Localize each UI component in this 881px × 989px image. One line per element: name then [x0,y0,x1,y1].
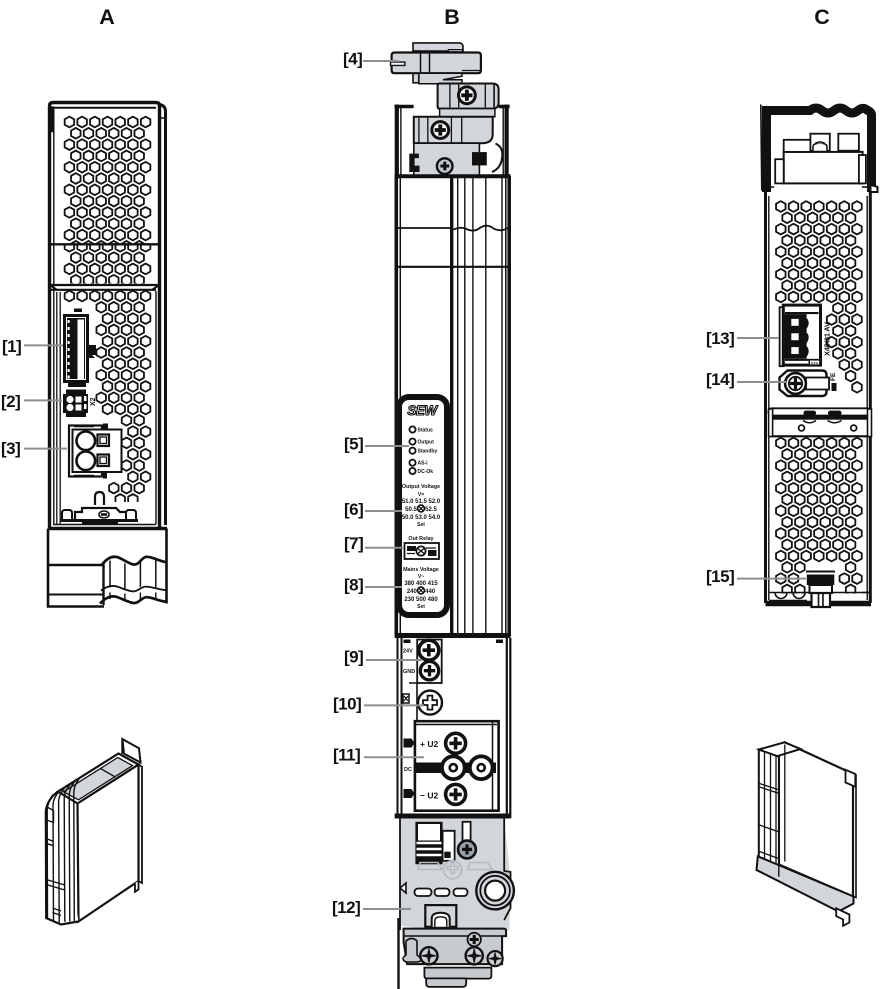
svg-text:[2]: [2] [1,392,20,411]
svg-text:Mains Voltage: Mains Voltage [403,567,439,573]
svg-text:+ U2: + U2 [420,739,438,749]
svg-text:FE: FE [830,372,837,381]
svg-text:B: B [444,5,460,29]
svg-text:C: C [814,5,830,29]
svg-text:[4]: [4] [343,49,362,68]
svg-text:[14]: [14] [706,370,734,389]
svg-text:SEW: SEW [407,403,438,418]
svg-text:[5]: [5] [344,434,363,453]
svg-text:[10]: [10] [333,694,361,713]
svg-text:[12]: [12] [332,898,360,917]
svg-text:Set: Set [417,604,425,610]
svg-text:Output: Output [418,440,435,446]
svg-text:[3]: [3] [1,439,20,458]
svg-text:V=: V= [418,492,424,498]
svg-text:24V: 24V [403,649,413,655]
svg-text:Out Relay: Out Relay [408,536,433,542]
svg-text:[1]: [1] [2,337,21,356]
svg-text:− U2: − U2 [420,791,438,801]
svg-text:AS-i: AS-i [418,461,429,467]
svg-text:[8]: [8] [344,576,363,595]
svg-text:A: A [99,5,115,29]
svg-text:X2: X2 [90,397,97,406]
svg-text:Standby: Standby [418,449,438,455]
svg-text:[6]: [6] [344,500,363,519]
svg-text:DC: DC [404,767,412,773]
svg-text:51.0 51.5 52.0: 51.0 51.5 52.0 [402,499,441,505]
svg-text:GND: GND [403,669,415,675]
svg-text:V~: V~ [418,574,424,580]
svg-text:[9]: [9] [344,647,363,666]
svg-text:230 500 480: 230 500 480 [404,597,438,603]
svg-text:50.0 53.0 54.0: 50.0 53.0 54.0 [402,515,441,521]
svg-text:Set: Set [417,522,425,528]
svg-text:[13]: [13] [706,329,734,348]
svg-text:[7]: [7] [344,534,363,553]
svg-text:Output Voltage: Output Voltage [402,484,440,490]
svg-text:Status: Status [418,428,434,434]
svg-text:[15]: [15] [706,567,734,586]
svg-text:X4/X31 AV: X4/X31 AV [823,322,832,356]
svg-text:DC-Ok: DC-Ok [418,469,434,475]
svg-text:380 400 415: 380 400 415 [404,581,438,587]
svg-text:[11]: [11] [333,745,360,764]
